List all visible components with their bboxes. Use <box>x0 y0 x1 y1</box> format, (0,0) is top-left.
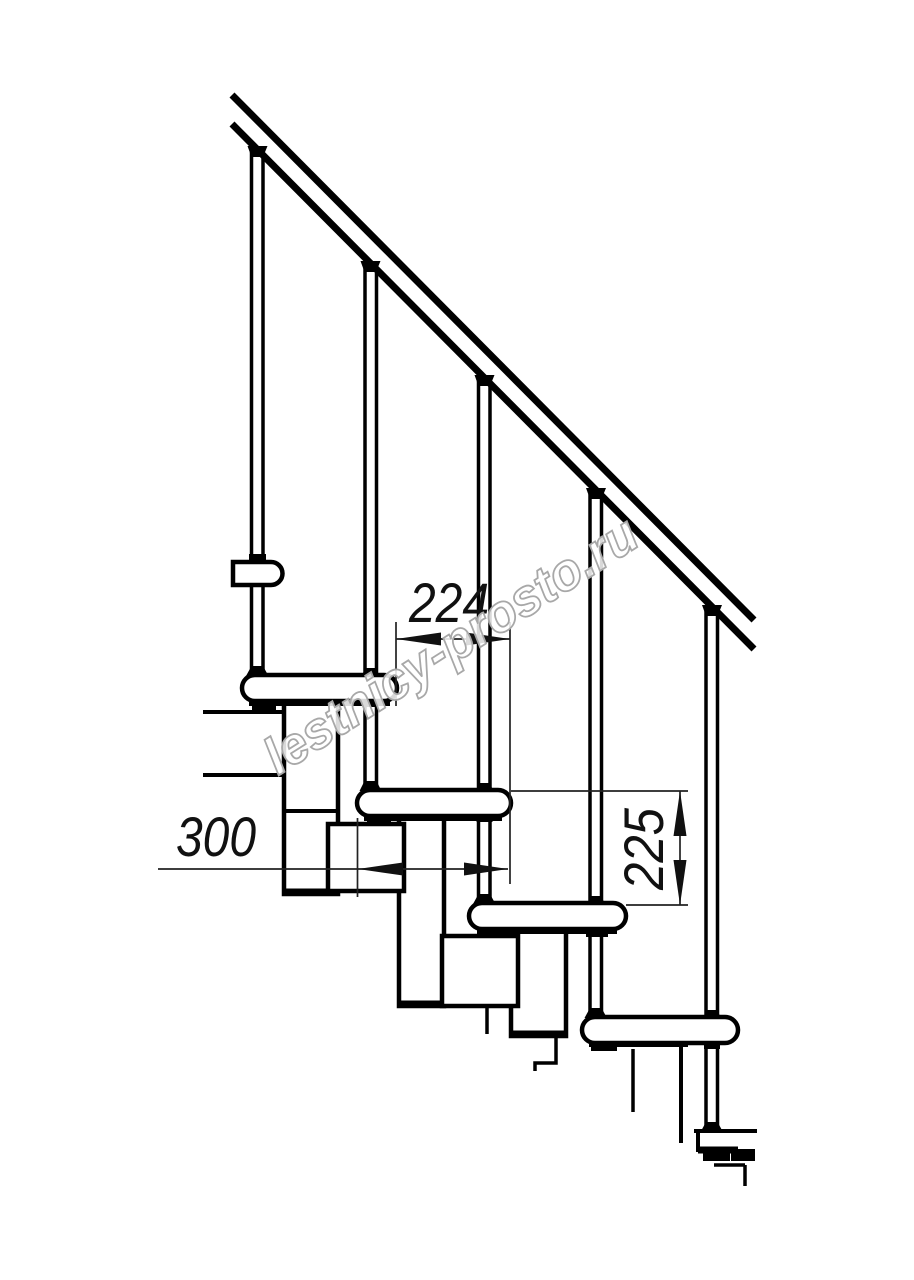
baluster-3-base-joint <box>473 894 496 904</box>
baluster-1-base-joint <box>246 666 269 676</box>
handrail <box>232 95 754 649</box>
drawing-canvas: 224 300 225 lestnicy-prosto.ru <box>0 0 914 1280</box>
handrail-bottom-edge <box>232 124 754 649</box>
dim-step-rise-label: 225 <box>612 807 675 891</box>
step-end-view <box>233 562 283 585</box>
step-2 <box>357 790 511 816</box>
baluster-1 <box>248 146 268 675</box>
baluster-4-base-joint <box>585 1008 608 1018</box>
baluster-5-base-joint <box>701 1122 724 1132</box>
handrail-top-edge <box>232 95 754 620</box>
step-3 <box>469 903 626 929</box>
baluster-5-step4-collar-lower <box>704 1042 720 1049</box>
baluster-4-step3-collar-lower <box>588 928 604 935</box>
dim-step-rise: 225 <box>511 791 688 905</box>
floor-mount-shadow <box>703 1152 730 1161</box>
dim-225-arrow-bottom <box>674 860 687 905</box>
baluster-1-sleeve <box>249 554 266 560</box>
dim-tread-depth-label: 300 <box>176 805 256 868</box>
baluster-5 <box>702 605 722 1131</box>
module-under-step-2 <box>328 824 404 891</box>
floor-mount <box>694 1131 757 1186</box>
module-under-step-3 <box>442 936 518 1006</box>
staircase-drawing: 224 300 225 lestnicy-prosto.ru <box>0 0 914 1280</box>
floor-mount-shadow <box>731 1149 755 1161</box>
dim-300-arrow-right <box>464 863 508 876</box>
dim-225-arrow-top <box>674 791 687 836</box>
baluster-3-step2-collar-lower <box>477 815 493 822</box>
step-4 <box>582 1017 738 1043</box>
